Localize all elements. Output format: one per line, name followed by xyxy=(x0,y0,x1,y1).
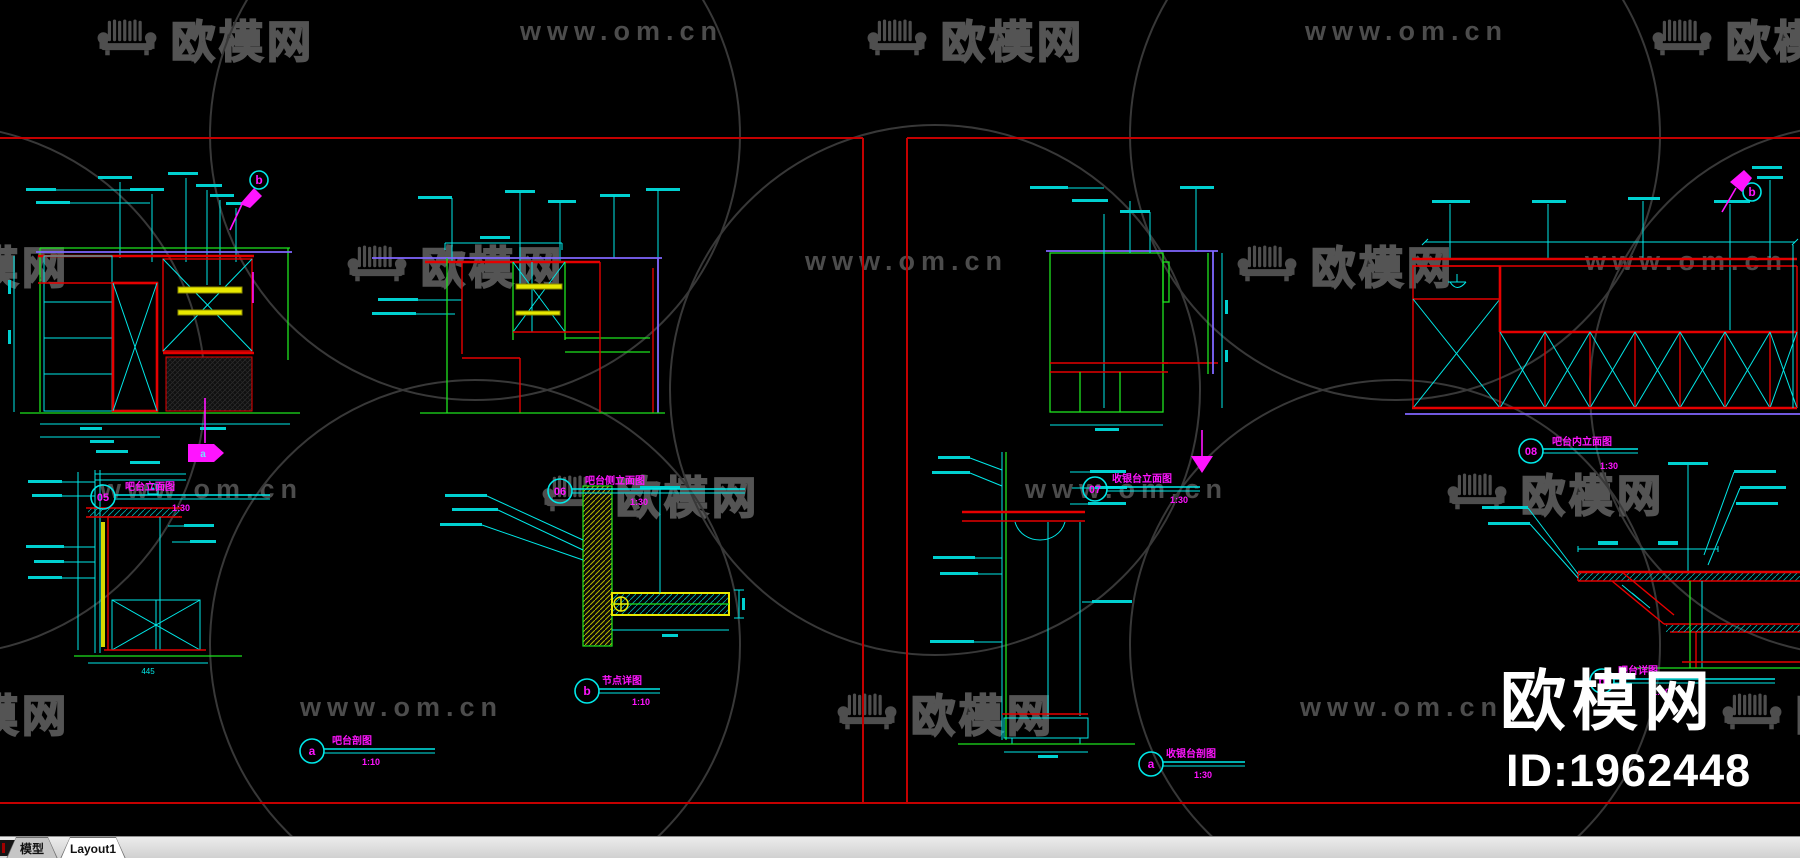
drawing-title: 吧台内立面图 xyxy=(1552,435,1612,448)
label-a-left: a 吧台剖图 1:10 xyxy=(300,734,435,767)
drawing-scale: 1:30 xyxy=(630,497,648,507)
drawing-05-bar-front-elevation: b a xyxy=(8,171,300,462)
drawing-title: 收银台立面图 xyxy=(1112,472,1172,485)
drawing-scale: 1:30 xyxy=(1170,495,1188,505)
section-flag-letter: b xyxy=(1748,185,1755,199)
layout-tab-bar: 模型 Layout1 xyxy=(0,836,1800,858)
dim-445: 445 xyxy=(141,667,155,676)
drawing-07-cashier-elevation xyxy=(1030,186,1228,473)
site-watermark-id: ID:1962448 xyxy=(1506,748,1751,793)
drawing-scale: 1:10 xyxy=(632,697,650,707)
bubble-number: 08 xyxy=(1525,446,1537,458)
tab-layout1[interactable]: Layout1 xyxy=(60,837,126,858)
drawing-08-bar-inner-elevation: b xyxy=(1405,166,1800,414)
bubble-number: 05 xyxy=(97,492,109,504)
detail-a-right-cashier-section xyxy=(930,452,1135,758)
bubble-letter: a xyxy=(309,744,316,758)
detail-b-right-bar-counter-detail xyxy=(1482,462,1800,668)
drawing-title: 收银台剖图 xyxy=(1166,747,1216,760)
cad-canvas[interactable]: b a xyxy=(0,0,1800,858)
drawing-scale: 1:10 xyxy=(362,757,380,767)
tab-model-label: 模型 xyxy=(20,840,44,857)
label-08: 08 吧台内立面图 1:30 xyxy=(1519,435,1638,471)
drawing-06-bar-side-elevation xyxy=(372,188,680,413)
label-07: 07 收银台立面图 1:30 xyxy=(1083,472,1200,505)
drawing-title: 节点详图 xyxy=(602,674,642,687)
site-watermark-title: 欧模网 xyxy=(1500,668,1716,734)
label-a-right: a 收银台剖图 1:30 xyxy=(1139,747,1245,780)
section-flag-letter: a xyxy=(200,449,206,460)
bubble-number: 07 xyxy=(1089,484,1101,496)
section-flag-letter: b xyxy=(255,173,262,187)
label-b-left: b 节点详图 1:10 xyxy=(575,674,660,707)
section-flag-08: b xyxy=(1722,170,1761,212)
drawing-title: 吧台剖图 xyxy=(332,734,372,747)
tab-layout1-label: Layout1 xyxy=(70,842,116,856)
section-flag-07 xyxy=(1191,430,1213,473)
drawing-scale: 1:30 xyxy=(172,503,190,513)
bubble-letter: a xyxy=(1148,757,1155,771)
bubble-number: 06 xyxy=(554,486,566,498)
label-06: 06 吧台侧立面图 1:30 xyxy=(548,474,745,507)
drawing-title: 吧台侧立面图 xyxy=(585,474,645,487)
drawing-title: 吧台立面图 xyxy=(125,480,175,493)
bubble-letter: b xyxy=(583,684,590,698)
drawing-scale: 1:30 xyxy=(1194,770,1212,780)
drawing-scale: 1:30 xyxy=(1600,461,1618,471)
